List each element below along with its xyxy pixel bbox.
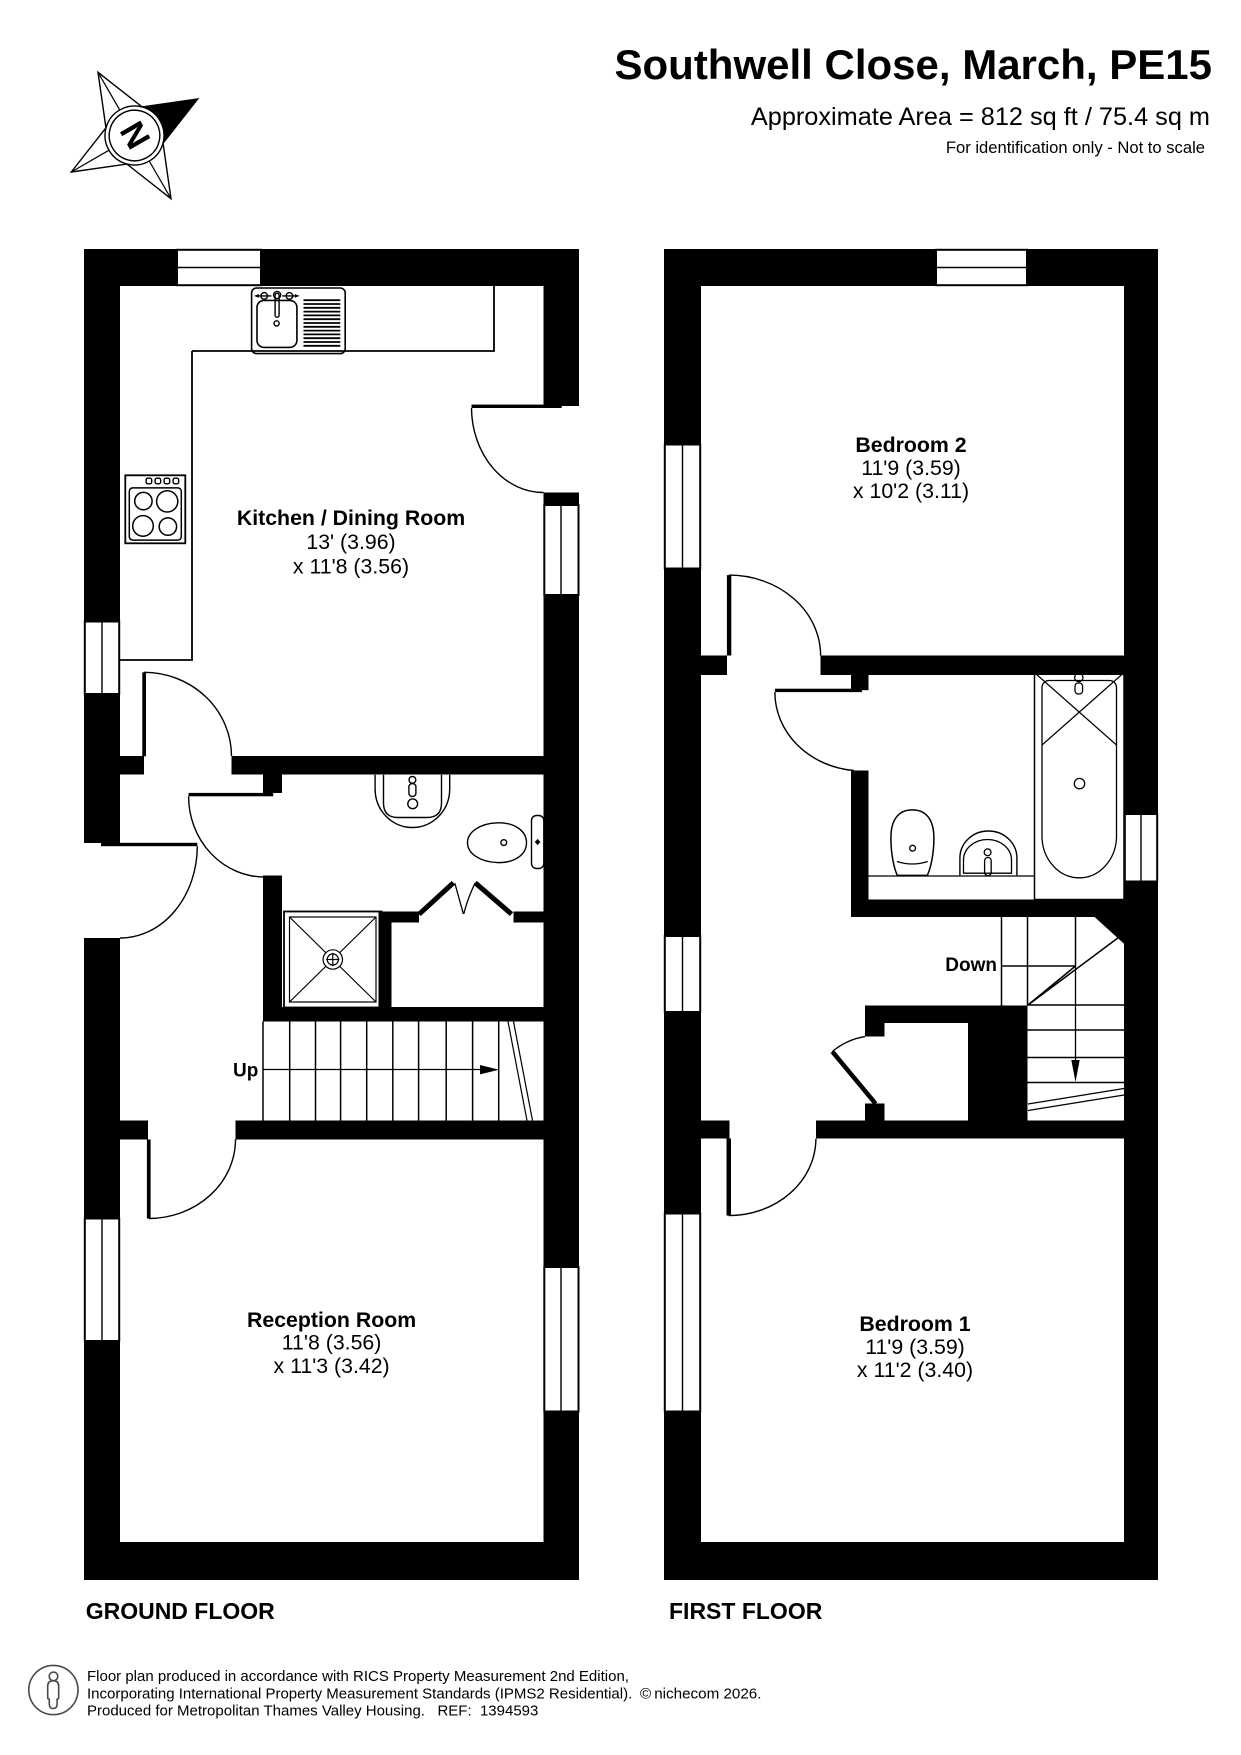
svg-text:FIRST FLOOR: FIRST FLOOR (669, 1598, 823, 1624)
svg-text:For identification only - Not: For identification only - Not to scale (946, 138, 1205, 157)
svg-text:Bedroom 1: Bedroom 1 (859, 1312, 970, 1336)
svg-text:Incorporating International Pr: Incorporating International Property Mea… (87, 1685, 632, 1702)
svg-text:Reception Room: Reception Room (247, 1308, 416, 1332)
svg-text:Southwell Close, March, PE15: Southwell Close, March, PE15 (615, 41, 1213, 88)
svg-text:x 11'2 (3.40): x 11'2 (3.40) (857, 1358, 973, 1382)
svg-text:x 10'2 (3.11): x 10'2 (3.11) (853, 479, 969, 503)
svg-text:11'8 (3.56): 11'8 (3.56) (282, 1331, 382, 1355)
svg-text:11'9 (3.59): 11'9 (3.59) (865, 1335, 965, 1359)
svg-text:Produced for Metropolitan Tham: Produced for Metropolitan Thames Valley … (87, 1703, 538, 1720)
svg-text:Up: Up (233, 1060, 258, 1081)
svg-text:x 11'3 (3.42): x 11'3 (3.42) (274, 1354, 390, 1378)
svg-text:Kitchen / Dining Room: Kitchen / Dining Room (237, 506, 465, 530)
svg-text:GROUND FLOOR: GROUND FLOOR (86, 1598, 275, 1624)
svg-text:Approximate Area = 812 sq ft /: Approximate Area = 812 sq ft / 75.4 sq m (751, 103, 1210, 131)
svg-text:Floor plan produced in accorda: Floor plan produced in accordance with R… (87, 1668, 629, 1685)
svg-text:13' (3.96): 13' (3.96) (306, 530, 395, 554)
svg-text:Down: Down (945, 955, 997, 976)
svg-text:x 11'8 (3.56): x 11'8 (3.56) (293, 555, 409, 579)
svg-text:Bedroom 2: Bedroom 2 (855, 433, 966, 457)
svg-text:© nichecom 2026.: © nichecom 2026. (640, 1685, 761, 1702)
svg-text:11'9 (3.59): 11'9 (3.59) (861, 456, 961, 480)
